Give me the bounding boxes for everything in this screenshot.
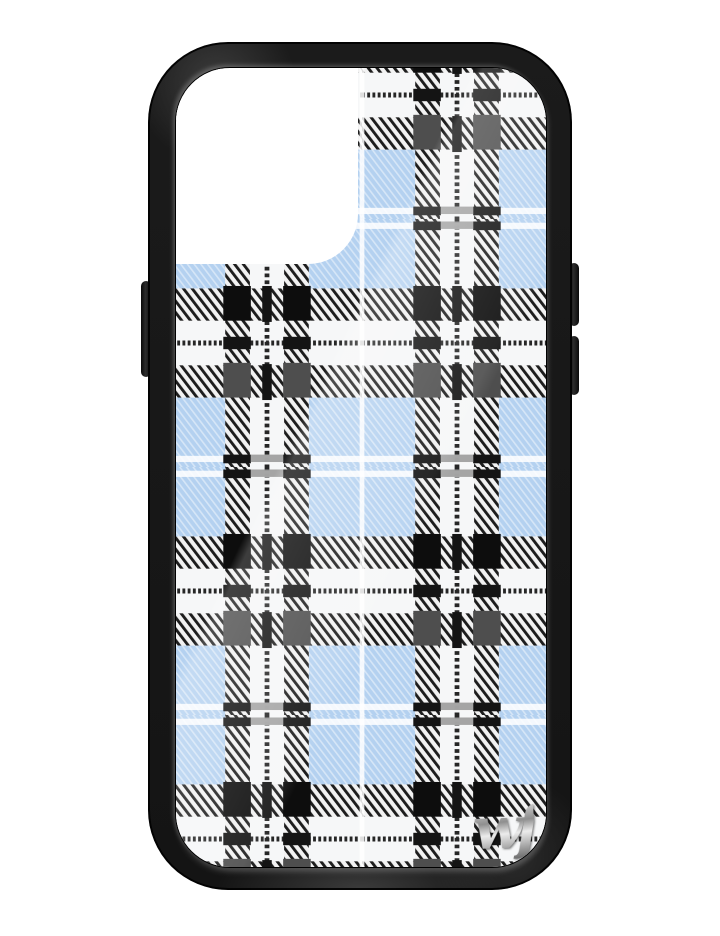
product-photo-stage: wf xyxy=(0,0,720,936)
phone-case-frame: wf xyxy=(148,42,572,890)
wildflower-logo: wf xyxy=(472,792,535,864)
camera-cutout xyxy=(176,68,358,264)
case-back: wf xyxy=(176,68,546,867)
